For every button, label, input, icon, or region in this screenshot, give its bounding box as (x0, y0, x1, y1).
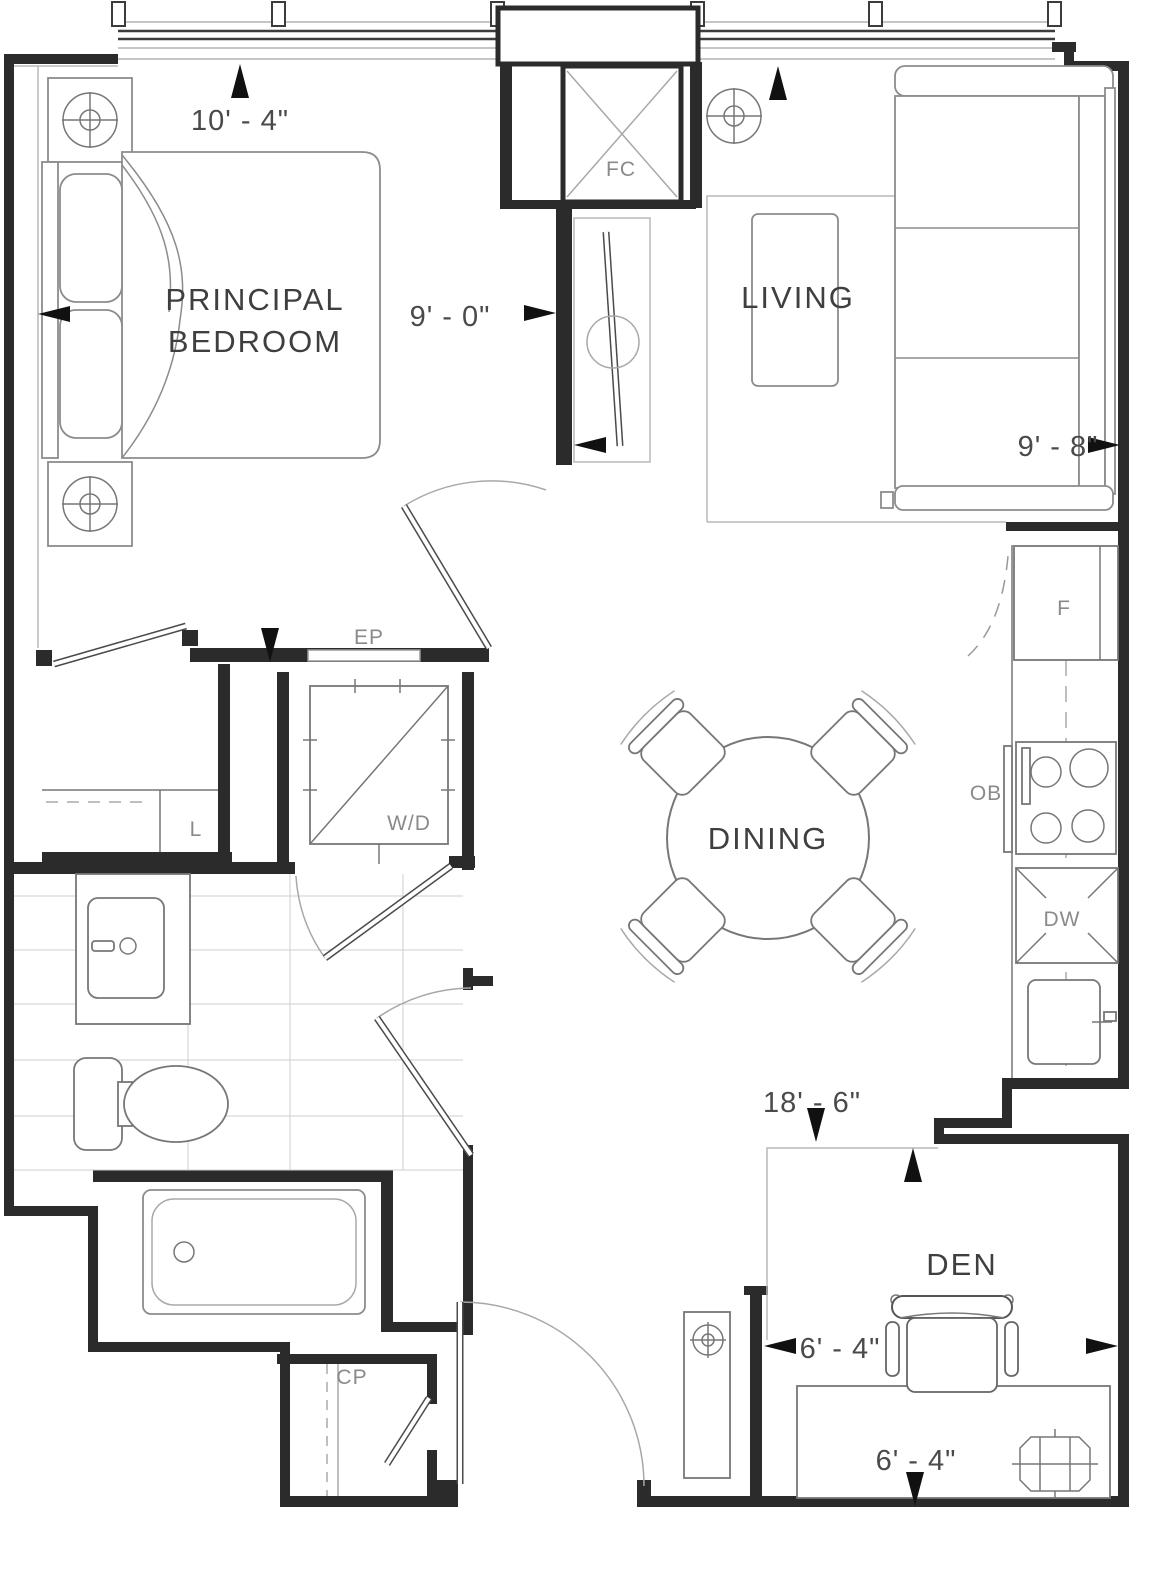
floor-plan: PRINCIPAL BEDROOM LIVING DINING DEN FC E… (0, 0, 1170, 1571)
window-wall (112, 2, 1061, 64)
dim-unit-depth: 18' - 6" (763, 1087, 861, 1119)
bathroom-vanity (76, 874, 190, 1024)
fan-coil-unit (563, 66, 681, 202)
dim-living-width: 9' - 8" (1018, 431, 1099, 463)
dim-bedroom-width: 10' - 4" (191, 105, 289, 137)
arrow-up-icon (231, 64, 249, 98)
bathroom-door-swing (296, 866, 471, 1155)
bedroom-label-line1: PRINCIPAL (165, 282, 344, 317)
fridge-label: F (1057, 597, 1071, 620)
living-ceiling-light-icon (706, 88, 762, 144)
dim-bedroom-depth: 9' - 0" (410, 301, 491, 333)
dim-den-width: 6' - 4" (800, 1333, 881, 1365)
office-chair (886, 1295, 1018, 1392)
arrow-left-icon (574, 437, 606, 453)
oven-below-label: OB (970, 782, 1002, 805)
tv-panel-unit (574, 218, 650, 462)
washer-dryer-label: W/D (387, 812, 431, 835)
dining-label: DINING (708, 821, 829, 856)
arrow-right-icon (1086, 1338, 1118, 1354)
bedroom-door-swing (404, 481, 546, 648)
dim-den-depth: 6' - 4" (876, 1445, 957, 1477)
arrow-up-icon (769, 66, 787, 100)
electrical-panel-label: EP (354, 626, 384, 649)
dishwasher-label: DW (1044, 908, 1081, 931)
coat-closet-label: CP (336, 1366, 367, 1389)
fan-coil-label: FC (606, 158, 636, 181)
kitchen-sink (1028, 980, 1116, 1064)
cooktop (1004, 742, 1116, 854)
arrow-left-icon (764, 1338, 796, 1354)
entry-door-swing (460, 1302, 644, 1486)
bedroom-closet-slider (54, 626, 186, 664)
bedroom-label-line2: BEDROOM (168, 324, 342, 359)
electrical-panel (308, 650, 420, 661)
linen-label: L (190, 818, 203, 841)
toilet (74, 1058, 228, 1150)
entry-console (684, 1312, 730, 1478)
living-label: LIVING (741, 280, 855, 315)
washer-dryer (303, 679, 455, 864)
arrow-up-icon (904, 1148, 922, 1182)
shear-wall-block (498, 8, 698, 64)
desk (797, 1386, 1110, 1498)
arrow-right-icon (524, 305, 556, 321)
den-label: DEN (926, 1247, 997, 1282)
fridge (968, 546, 1118, 660)
bathtub (143, 1190, 365, 1314)
